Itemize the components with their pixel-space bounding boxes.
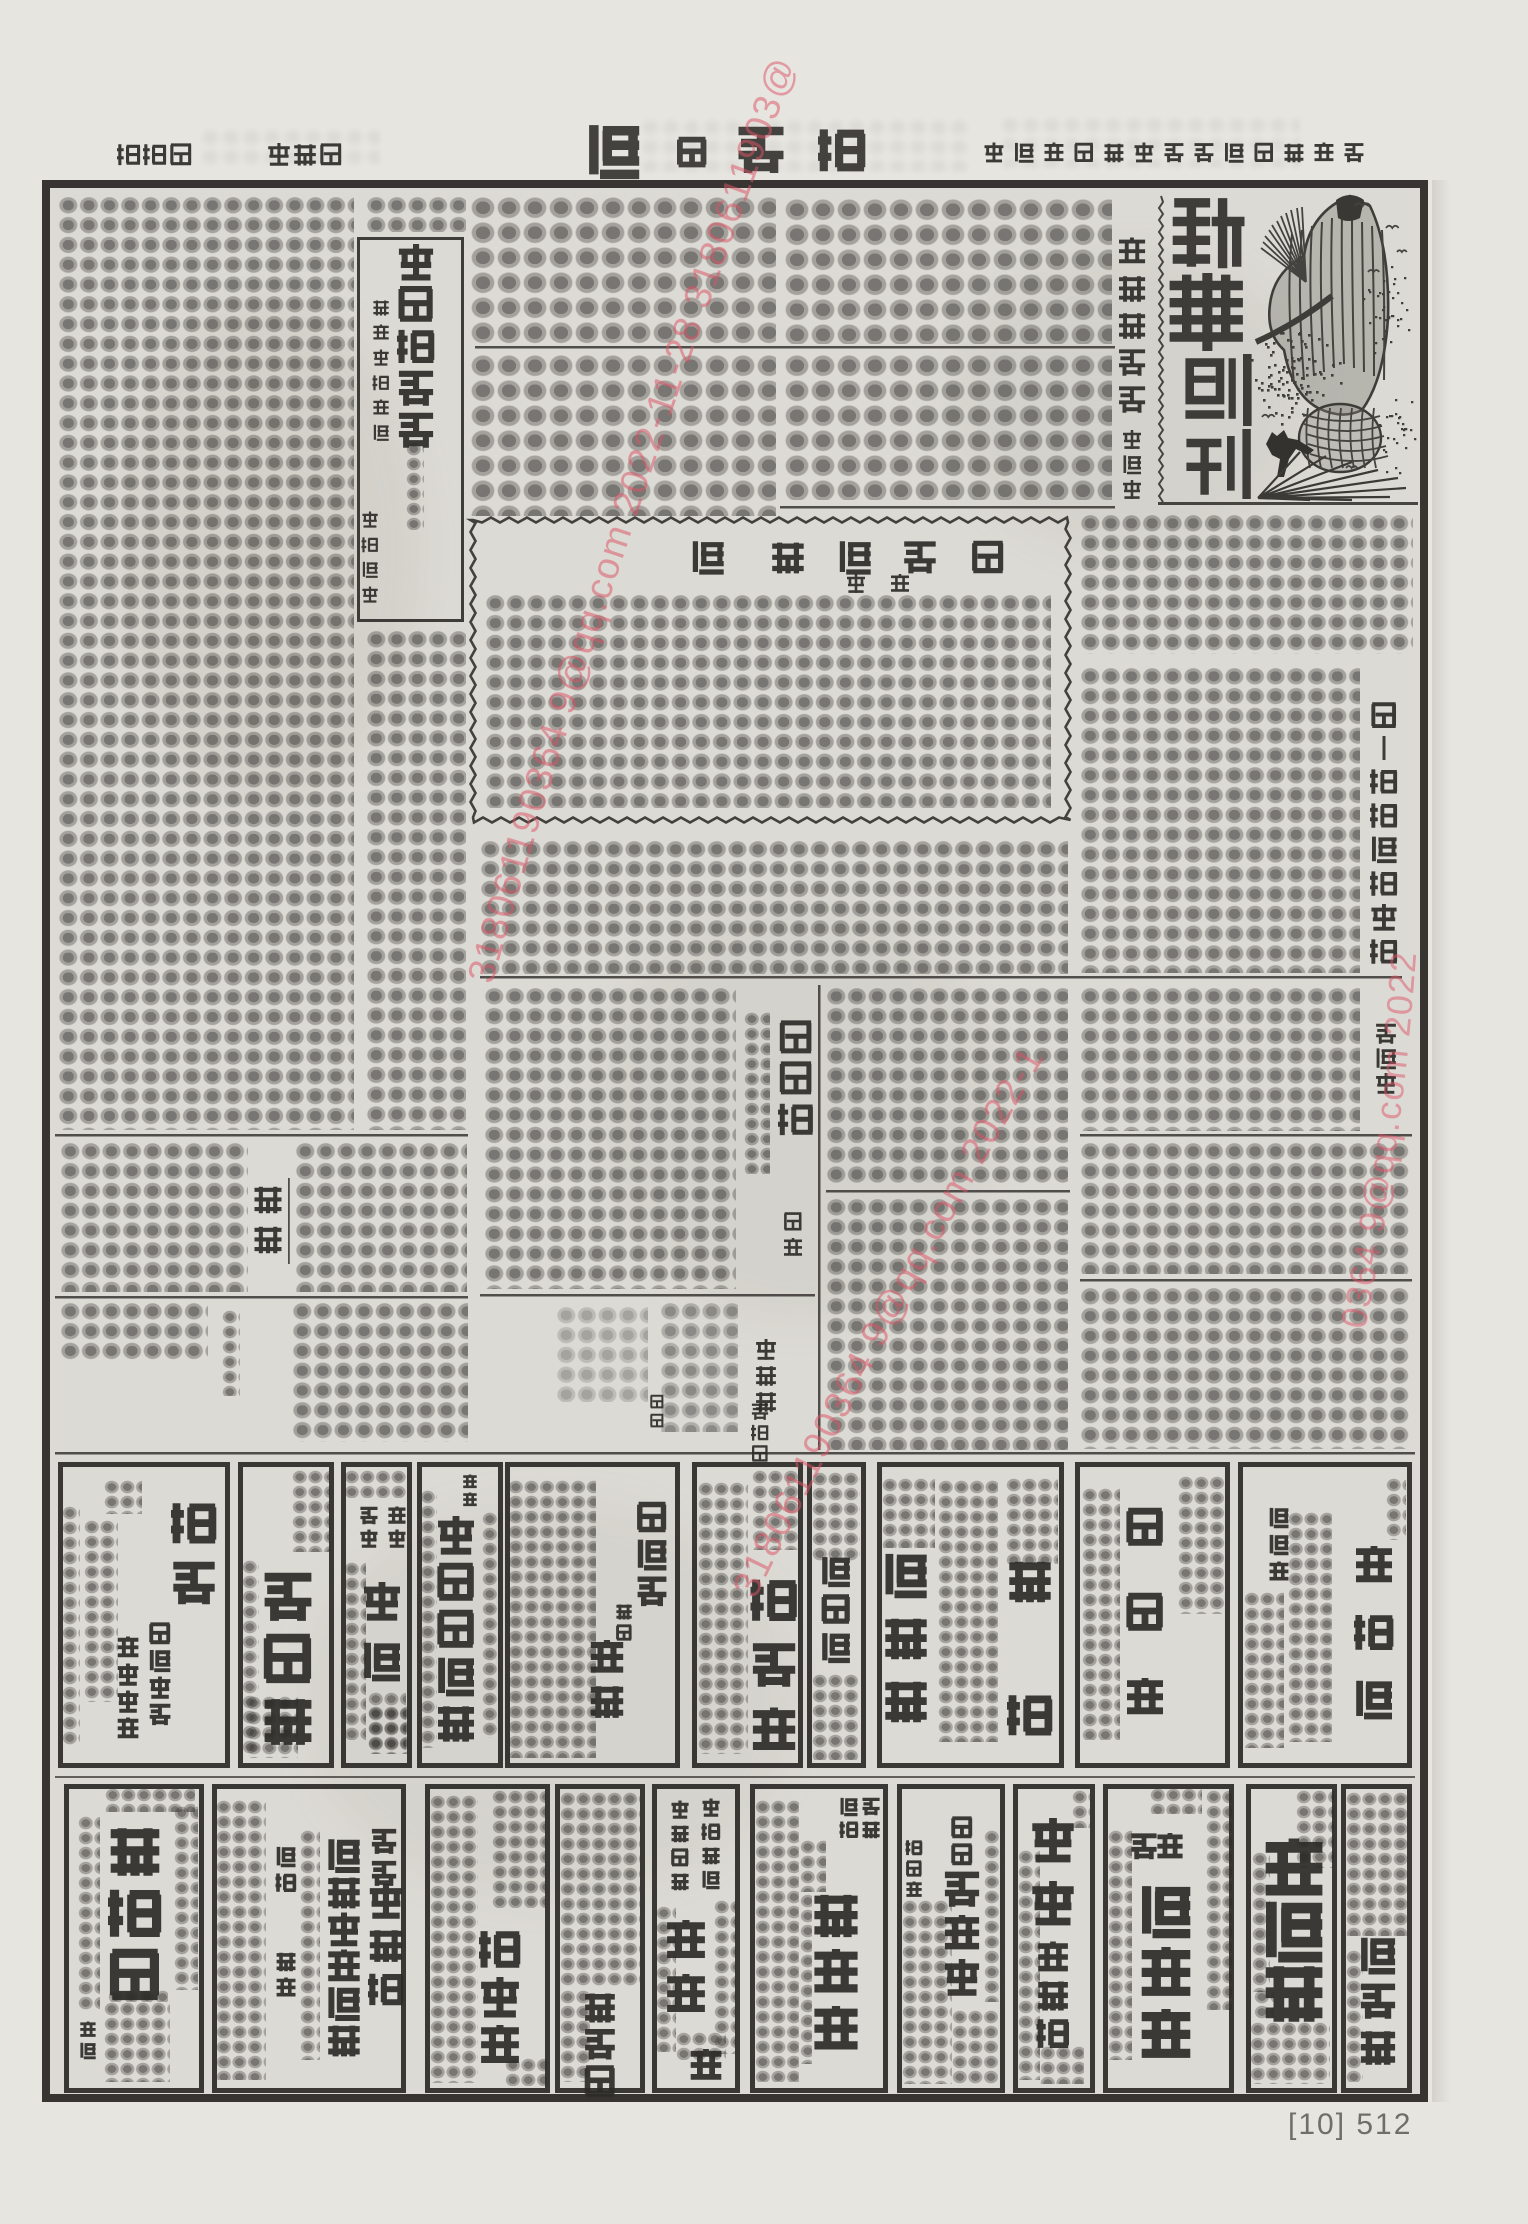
svg-text:318061190364 9@qq.com 2022-1: 318061190364 9@qq.com 2022-1 [725,1039,1052,1604]
svg-text:0364 9@qq.com 2022: 0364 9@qq.com 2022 [1333,949,1425,1331]
